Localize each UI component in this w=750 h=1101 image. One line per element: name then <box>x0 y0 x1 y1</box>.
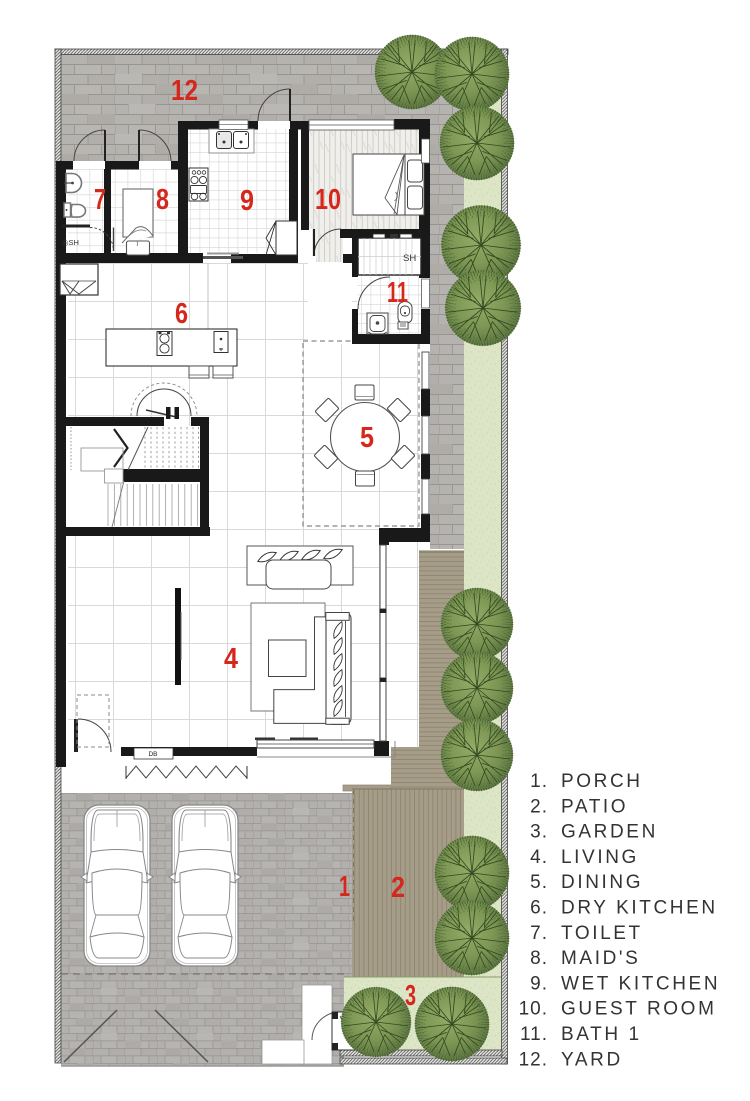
svg-text:11: 11 <box>387 277 408 309</box>
svg-text:5.: 5. <box>530 872 548 893</box>
svg-text:TOILET: TOILET <box>561 923 643 944</box>
svg-text:8.: 8. <box>530 948 548 969</box>
svg-text:1: 1 <box>339 871 350 903</box>
svg-text:PATIO: PATIO <box>561 796 628 817</box>
svg-text:8: 8 <box>156 184 169 216</box>
svg-text:6: 6 <box>175 298 188 330</box>
svg-text:◎SH: ◎SH <box>62 238 79 247</box>
svg-text:5: 5 <box>360 422 374 454</box>
svg-text:1.: 1. <box>530 771 548 792</box>
svg-text:GUEST ROOM: GUEST ROOM <box>561 999 717 1020</box>
svg-text:DRY KITCHEN: DRY KITCHEN <box>561 898 718 919</box>
svg-text:YARD: YARD <box>561 1049 623 1070</box>
svg-text:10.: 10. <box>519 999 548 1020</box>
svg-text:WET KITCHEN: WET KITCHEN <box>561 973 720 994</box>
svg-text:LIVING: LIVING <box>561 847 639 868</box>
svg-text:DB: DB <box>148 751 157 758</box>
svg-text:6.: 6. <box>530 898 548 919</box>
svg-text:MAID'S: MAID'S <box>561 948 640 969</box>
svg-text:2.: 2. <box>530 796 548 817</box>
svg-text:7.: 7. <box>530 923 548 944</box>
svg-text:7: 7 <box>94 184 106 216</box>
svg-text:9: 9 <box>240 185 254 217</box>
svg-text:BATH 1: BATH 1 <box>561 1024 642 1045</box>
svg-text:4: 4 <box>224 643 238 675</box>
svg-text:DINING: DINING <box>561 872 643 893</box>
svg-text:SH: SH <box>403 253 416 264</box>
svg-text:3: 3 <box>405 980 416 1012</box>
svg-text:PORCH: PORCH <box>561 771 643 792</box>
svg-text:10: 10 <box>315 184 341 216</box>
svg-text:3.: 3. <box>530 822 548 843</box>
svg-text:11.: 11. <box>520 1024 548 1045</box>
svg-text:12: 12 <box>171 75 198 107</box>
svg-text:2: 2 <box>391 872 405 904</box>
svg-text:GARDEN: GARDEN <box>561 822 658 843</box>
svg-text:12.: 12. <box>519 1049 548 1070</box>
svg-text:4.: 4. <box>530 847 548 868</box>
svg-text:9.: 9. <box>530 973 548 994</box>
